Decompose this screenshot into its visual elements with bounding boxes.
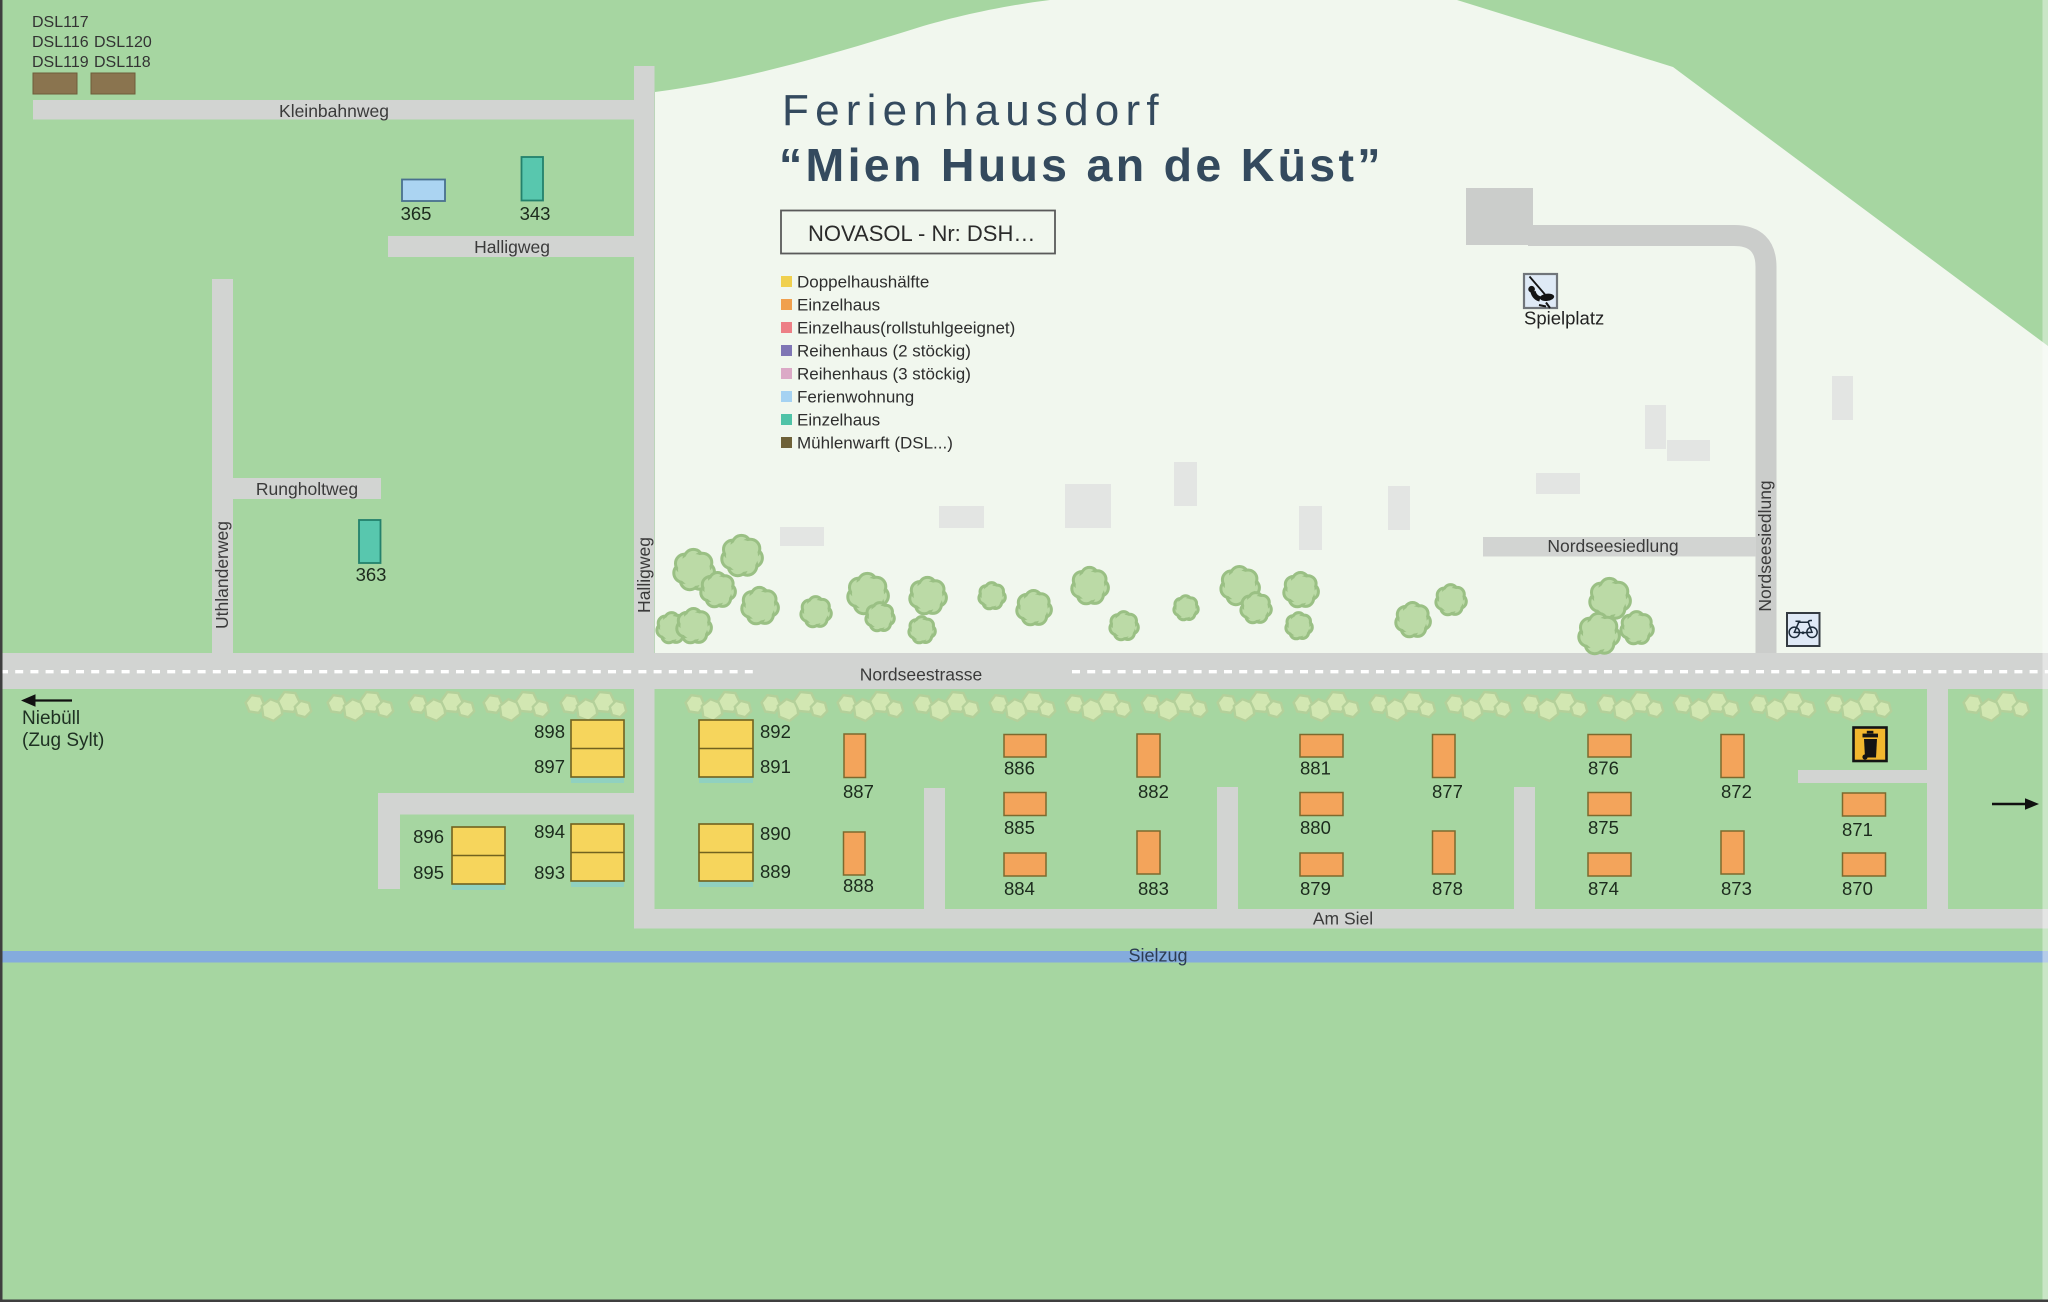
svg-text:Ferienwohnung: Ferienwohnung xyxy=(797,388,914,407)
svg-text:875: 875 xyxy=(1588,817,1619,838)
svg-text:891: 891 xyxy=(760,756,791,777)
svg-text:343: 343 xyxy=(520,203,551,224)
svg-text:873: 873 xyxy=(1721,878,1752,899)
svg-text:888: 888 xyxy=(843,875,874,896)
svg-text:Am Siel: Am Siel xyxy=(1313,909,1373,929)
svg-text:Kleinbahnweg: Kleinbahnweg xyxy=(279,101,389,121)
svg-text:872: 872 xyxy=(1721,781,1752,802)
svg-text:Nordseesiedlung: Nordseesiedlung xyxy=(1547,536,1678,556)
svg-text:Halligweg: Halligweg xyxy=(474,237,550,257)
svg-text:DSL117: DSL117 xyxy=(32,14,89,31)
svg-text:878: 878 xyxy=(1432,878,1463,899)
svg-text:898: 898 xyxy=(534,721,565,742)
svg-text:885: 885 xyxy=(1004,817,1035,838)
svg-text:Ferienhausdorf: Ferienhausdorf xyxy=(782,86,1165,135)
svg-text:Doppelhaushälfte: Doppelhaushälfte xyxy=(797,273,929,292)
svg-text:DSL118: DSL118 xyxy=(94,54,151,71)
svg-text:893: 893 xyxy=(534,862,565,883)
svg-text:896: 896 xyxy=(413,826,444,847)
svg-text:(Zug Sylt): (Zug Sylt) xyxy=(22,730,104,751)
svg-text:876: 876 xyxy=(1588,758,1619,779)
svg-text:877: 877 xyxy=(1432,781,1463,802)
svg-text:Mühlenwarft (DSL...): Mühlenwarft (DSL...) xyxy=(797,434,953,453)
svg-text:882: 882 xyxy=(1138,781,1169,802)
svg-text:DSL119: DSL119 xyxy=(32,54,89,71)
svg-text:890: 890 xyxy=(760,823,791,844)
svg-text:NOVASOL - Nr: DSH…: NOVASOL - Nr: DSH… xyxy=(808,221,1035,246)
svg-text:363: 363 xyxy=(356,564,387,585)
svg-text:Reihenhaus (3 stöckig): Reihenhaus (3 stöckig) xyxy=(797,365,971,384)
svg-text:DSL120: DSL120 xyxy=(94,34,152,51)
svg-text:883: 883 xyxy=(1138,878,1169,899)
svg-text:881: 881 xyxy=(1300,758,1331,779)
svg-text:897: 897 xyxy=(534,756,565,777)
svg-text:870: 870 xyxy=(1842,878,1873,899)
svg-text:“Mien Huus an de Küst”: “Mien Huus an de Küst” xyxy=(779,139,1384,191)
svg-text:886: 886 xyxy=(1004,758,1035,779)
svg-text:Rungholtweg: Rungholtweg xyxy=(256,479,358,499)
svg-text:884: 884 xyxy=(1004,878,1035,899)
svg-text:Halligweg: Halligweg xyxy=(634,537,654,613)
svg-text:Einzelhaus(rollstuhlgeeignet): Einzelhaus(rollstuhlgeeignet) xyxy=(797,319,1015,338)
svg-text:Reihenhaus (2 stöckig): Reihenhaus (2 stöckig) xyxy=(797,342,971,361)
svg-text:892: 892 xyxy=(760,721,791,742)
svg-text:Spielplatz: Spielplatz xyxy=(1524,308,1604,329)
svg-text:874: 874 xyxy=(1588,878,1619,899)
svg-text:894: 894 xyxy=(534,821,565,842)
svg-text:Einzelhaus: Einzelhaus xyxy=(797,296,880,315)
svg-text:887: 887 xyxy=(843,781,874,802)
svg-text:365: 365 xyxy=(401,203,432,224)
svg-text:889: 889 xyxy=(760,861,791,882)
svg-text:Nordseestrasse: Nordseestrasse xyxy=(860,665,983,685)
svg-text:Einzelhaus: Einzelhaus xyxy=(797,411,880,430)
svg-text:Nordseesiedlung: Nordseesiedlung xyxy=(1755,480,1775,611)
svg-text:DSL116: DSL116 xyxy=(32,34,89,51)
svg-text:879: 879 xyxy=(1300,878,1331,899)
svg-text:895: 895 xyxy=(413,862,444,883)
svg-text:Uthlanderweg: Uthlanderweg xyxy=(212,521,232,629)
svg-text:880: 880 xyxy=(1300,817,1331,838)
svg-text:Niebüll: Niebüll xyxy=(22,708,80,729)
svg-text:871: 871 xyxy=(1842,819,1873,840)
svg-text:Sielzug: Sielzug xyxy=(1128,946,1187,966)
